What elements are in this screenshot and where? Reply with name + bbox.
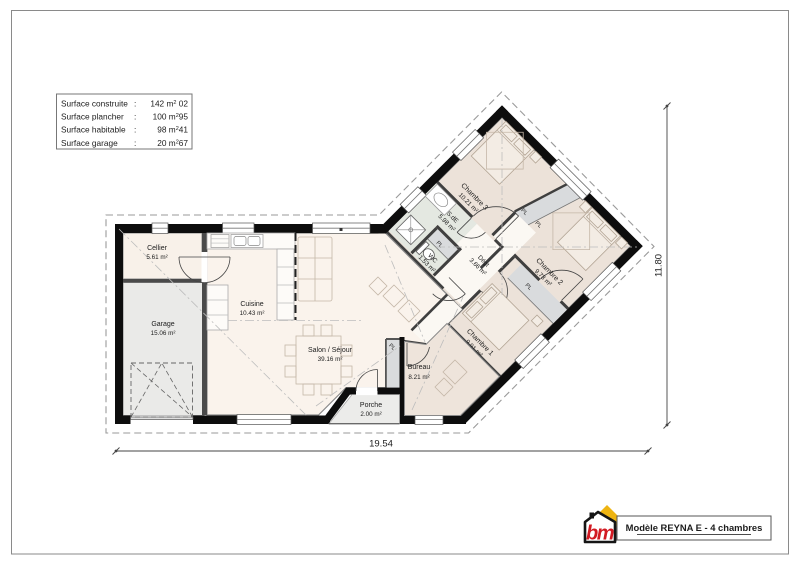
svg-text:100 m295: 100 m295 — [153, 112, 189, 122]
svg-text::: : — [134, 98, 136, 108]
svg-text:Porche: Porche — [360, 402, 382, 409]
svg-text:Bureau: Bureau — [408, 364, 431, 371]
svg-text:98 m241: 98 m241 — [157, 125, 188, 135]
svg-text:Surface construite: Surface construite — [61, 98, 128, 108]
svg-text:142 m2 02: 142 m2 02 — [150, 98, 188, 108]
svg-text:Surface garage: Surface garage — [61, 138, 118, 148]
svg-text:Surface plancher: Surface plancher — [61, 112, 124, 122]
svg-text:39.16 m²: 39.16 m² — [318, 356, 343, 363]
svg-text:Surface habitable: Surface habitable — [61, 125, 126, 135]
svg-text:Garage: Garage — [151, 321, 174, 328]
svg-text:5.61 m²: 5.61 m² — [146, 254, 167, 261]
svg-text:10.43 m²: 10.43 m² — [240, 310, 265, 317]
svg-text:Salon / Séjour: Salon / Séjour — [308, 347, 353, 354]
svg-text::: : — [134, 112, 136, 122]
svg-text:Cellier: Cellier — [147, 245, 168, 252]
svg-text:20 m267: 20 m267 — [157, 138, 188, 148]
svg-text:2.00 m²: 2.00 m² — [360, 411, 381, 418]
svg-text:bm: bm — [586, 523, 614, 545]
svg-text:11.80: 11.80 — [654, 254, 665, 277]
svg-text:19.54: 19.54 — [369, 439, 393, 450]
svg-text:Cuisine: Cuisine — [240, 301, 263, 308]
svg-text:15.06 m²: 15.06 m² — [151, 330, 176, 337]
svg-text::: : — [134, 138, 136, 148]
svg-text::: : — [134, 125, 136, 135]
svg-text:8.21 m²: 8.21 m² — [408, 374, 429, 381]
svg-text:Modèle REYNA E - 4 chambres: Modèle REYNA E - 4 chambres — [626, 522, 763, 533]
